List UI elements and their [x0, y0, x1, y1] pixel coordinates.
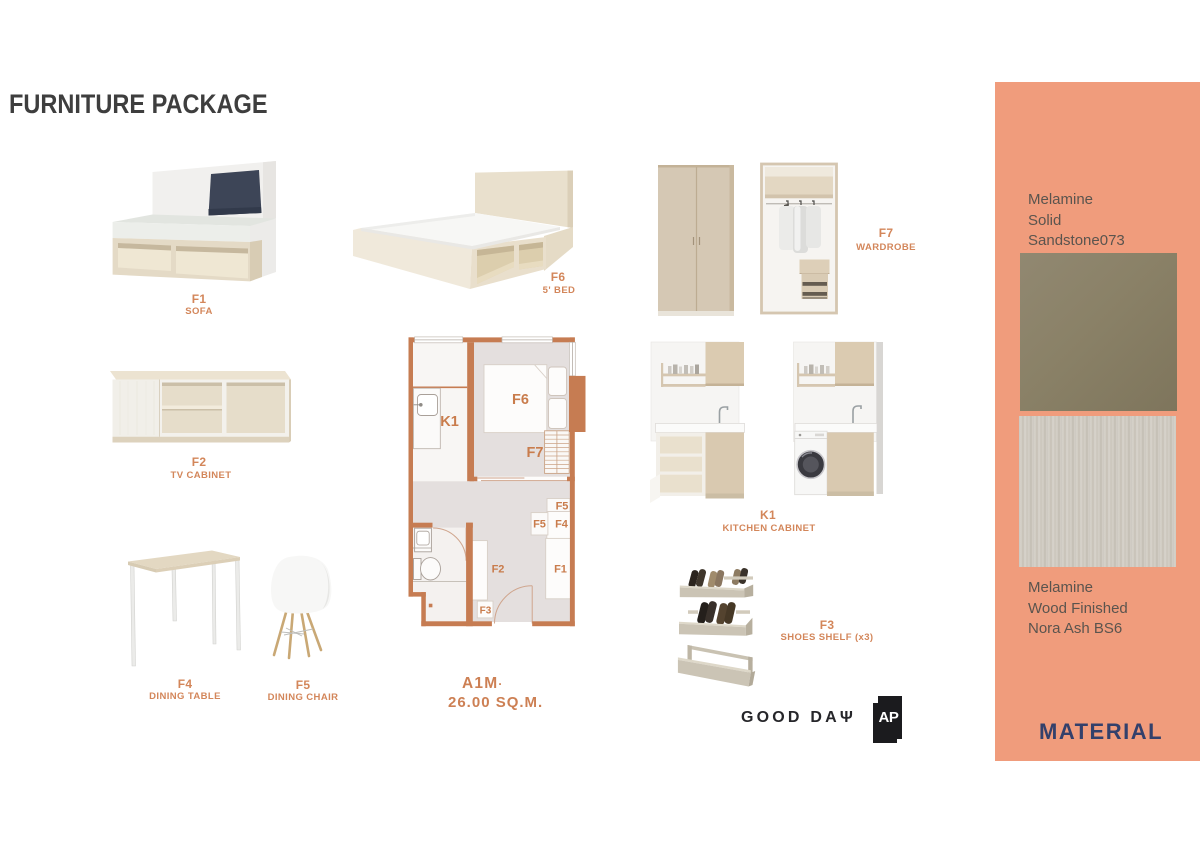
svg-text:F1: F1: [554, 564, 567, 576]
svg-text:F3: F3: [480, 606, 492, 617]
svg-text:F5: F5: [533, 519, 546, 531]
svg-text:F6: F6: [512, 392, 529, 408]
svg-text:F7: F7: [527, 445, 544, 461]
svg-text:F2: F2: [492, 564, 505, 576]
svg-text:K1: K1: [440, 414, 459, 430]
svg-text:F4: F4: [555, 519, 569, 531]
svg-text:F5: F5: [556, 501, 569, 513]
